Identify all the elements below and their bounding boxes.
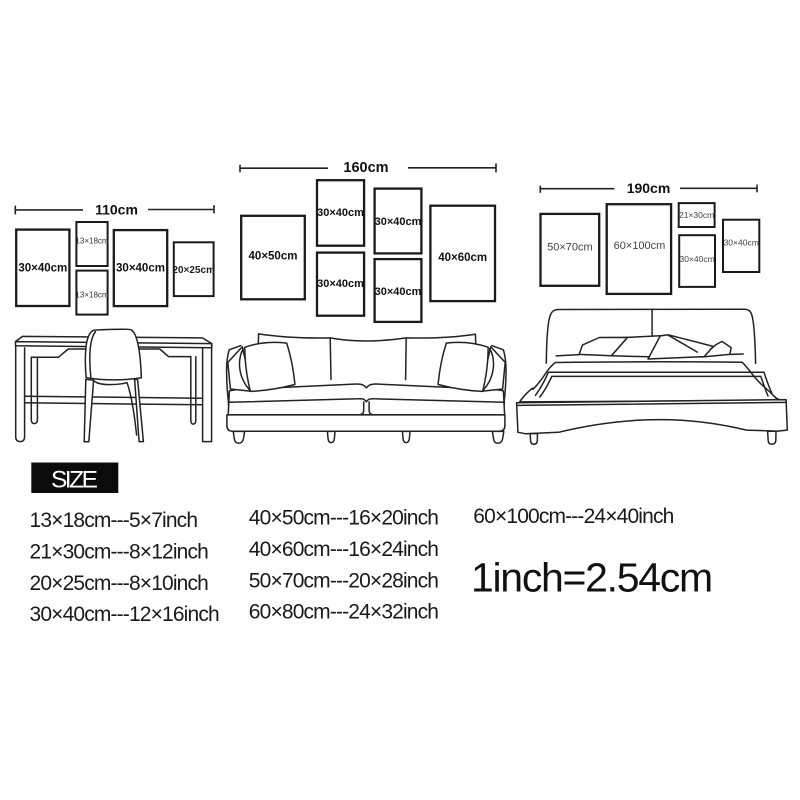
svg-text:13×18cm: 13×18cm [75,291,108,300]
svg-text:30×40cm---12×16inch: 30×40cm---12×16inch [30,603,219,626]
svg-text:20×25cm: 20×25cm [172,265,215,276]
svg-text:40×50cm---16×20inch: 40×50cm---16×20inch [249,506,438,529]
svg-text:30×40cm: 30×40cm [679,254,714,264]
svg-text:13×18cm---5×7inch: 13×18cm---5×7inch [30,509,198,532]
svg-text:30×40cm: 30×40cm [116,263,165,275]
svg-text:30×40cm: 30×40cm [18,263,67,275]
svg-text:30×40cm: 30×40cm [375,216,422,228]
svg-text:50×70cm: 50×70cm [547,241,593,253]
svg-text:30×40cm: 30×40cm [317,207,364,219]
svg-text:60×100cm: 60×100cm [614,240,666,252]
svg-text:50×70cm---20×28inch: 50×70cm---20×28inch [249,570,438,593]
svg-text:20×25cm---8×10inch: 20×25cm---8×10inch [30,572,209,595]
svg-text:SIZE: SIZE [51,467,98,494]
svg-text:40×60cm: 40×60cm [438,252,487,264]
svg-text:13×18cm: 13×18cm [75,237,108,246]
svg-text:30×40cm: 30×40cm [375,286,422,298]
svg-text:21×30cm: 21×30cm [679,210,714,220]
svg-text:190cm: 190cm [627,180,671,196]
svg-text:160cm: 160cm [343,160,388,176]
svg-text:110cm: 110cm [95,201,138,217]
svg-text:40×50cm: 40×50cm [249,251,298,263]
svg-text:30×40cm: 30×40cm [724,238,759,248]
svg-text:40×60cm---16×24inch: 40×60cm---16×24inch [249,538,438,561]
svg-text:1inch=2.54cm: 1inch=2.54cm [471,555,712,601]
svg-text:21×30cm---8×12inch: 21×30cm---8×12inch [30,541,209,564]
svg-text:60×80cm---24×32inch: 60×80cm---24×32inch [249,601,438,624]
svg-text:60×100cm---24×40inch: 60×100cm---24×40inch [473,505,673,528]
svg-text:30×40cm: 30×40cm [317,278,364,290]
